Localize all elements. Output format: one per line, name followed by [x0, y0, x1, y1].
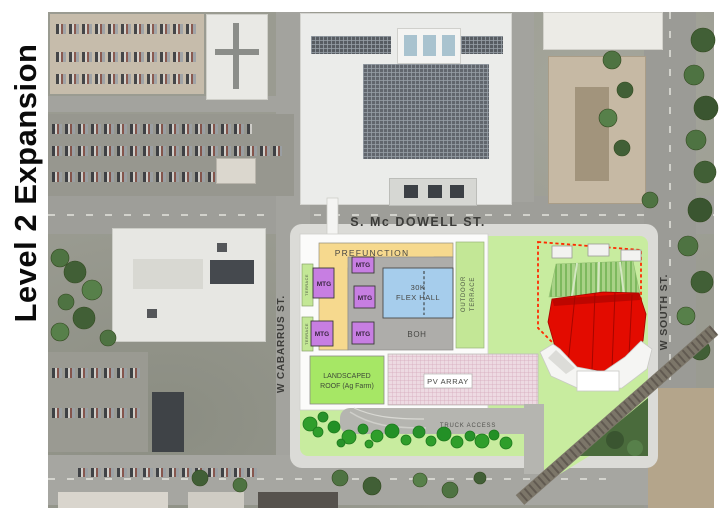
tree [694, 96, 718, 120]
tree [686, 130, 706, 150]
tree [500, 437, 512, 449]
tree [73, 307, 95, 329]
structure [552, 246, 572, 258]
flex-hall-label-line1: 30K [411, 283, 426, 292]
tree [465, 431, 475, 441]
tree [684, 65, 704, 85]
mtg-label-3: MTG [358, 295, 372, 302]
tree [337, 439, 345, 447]
structure [588, 244, 609, 256]
boh-label: BOH [407, 330, 426, 339]
tree [365, 440, 373, 448]
tree [603, 51, 621, 69]
tree [64, 261, 86, 283]
tree [451, 436, 463, 448]
tree [51, 323, 69, 341]
tree [437, 427, 451, 441]
tree [426, 436, 436, 446]
street-label-cabarrus: W CABARRUS ST. [276, 295, 287, 393]
prefunction-label: PREFUNCTION [335, 248, 410, 258]
tree [328, 421, 340, 433]
tree [332, 470, 348, 486]
tree [192, 470, 208, 486]
tree [606, 431, 624, 449]
tree [233, 478, 247, 492]
tree [363, 477, 381, 495]
tree [694, 161, 716, 183]
structure [621, 250, 641, 261]
tree [691, 271, 713, 293]
site-plan-overlay: S. Mc DOWELL ST. W CABARRUS ST. W SOUTH … [0, 0, 720, 521]
truck-ramp [524, 404, 544, 474]
tree [401, 435, 411, 445]
outdoor-terrace-label-line2: TERRACE [470, 277, 476, 311]
lawn-seating [549, 261, 640, 297]
tree [475, 434, 489, 448]
tree [371, 430, 383, 442]
tree [413, 426, 425, 438]
tree [385, 424, 399, 438]
tree [82, 280, 102, 300]
tree [58, 294, 74, 310]
slide: Level 2 Expansion [0, 0, 720, 521]
tree [313, 427, 323, 437]
tree [627, 440, 643, 456]
tree [691, 28, 715, 52]
tree [489, 430, 499, 440]
landscaped-roof-label-line2: ROOF (Ag Farm) [320, 383, 374, 390]
flex-hall-label-line2: FLEX HALL [396, 293, 440, 302]
mtg-label-1: MTG [356, 262, 370, 269]
tree [51, 249, 69, 267]
landscaped-roof-label-line1: LANDSCAPED [323, 373, 370, 380]
mtg-label-2: MTG [317, 281, 331, 288]
tree [358, 424, 368, 434]
street-label-south: W SOUTH ST. [658, 274, 670, 350]
outdoor-terrace-label-line1: OUTDOOR [461, 276, 467, 312]
tree [599, 109, 617, 127]
terrace-upper-label: TERRACE [304, 274, 309, 296]
tree [318, 412, 328, 422]
pv-array-label: PV ARRAY [427, 377, 469, 386]
tree [677, 307, 695, 325]
terrace-lower-label: TERRACE [304, 323, 309, 345]
mtg-label-4: MTG [315, 331, 329, 338]
landscaped-roof-area [310, 356, 384, 404]
mtg-label-5: MTG [356, 331, 370, 338]
tree [100, 330, 116, 346]
street-label-mcdowell: S. Mc DOWELL ST. [350, 215, 486, 229]
tree [642, 192, 658, 208]
tree [413, 473, 427, 487]
tree [688, 198, 712, 222]
tree [617, 82, 633, 98]
tree [614, 140, 630, 156]
tree [442, 482, 458, 498]
tree [678, 236, 698, 256]
stage-front [577, 371, 619, 391]
tree [474, 472, 486, 484]
truck-access-label: TRUCK ACCESS [440, 423, 496, 429]
